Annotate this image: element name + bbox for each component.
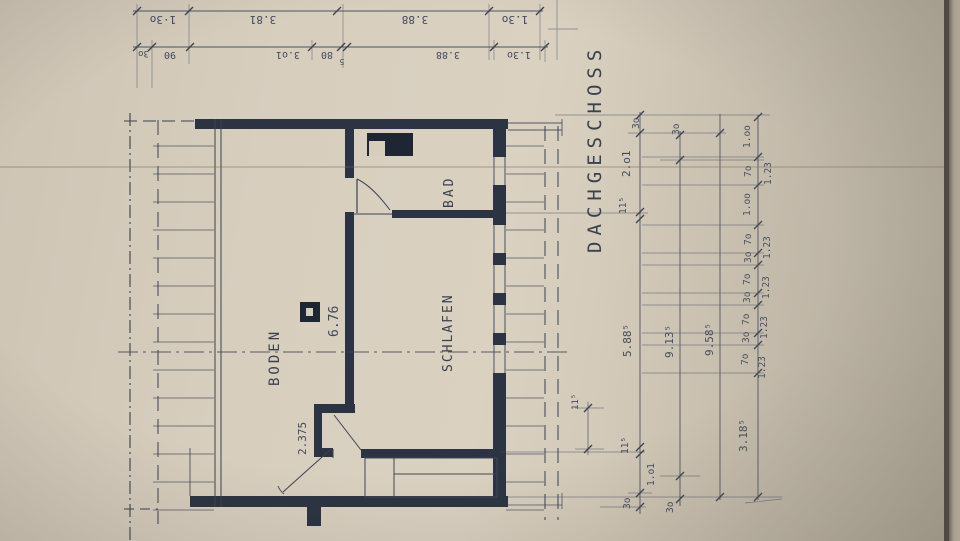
dim-c4-1: 7o [743,158,754,184]
dim-top-inner-5: 1.3o [497,49,541,60]
dim-c2-1: 9.13⁵ [663,306,676,376]
dimension-ticks [133,7,762,511]
dim-c1-2: 11⁵ [618,190,629,220]
dim-c4-4: 3o [743,249,754,265]
dim-window-height-5: 1.23 [757,351,768,385]
dim-c4-2: 1.oo [742,190,753,220]
dim-window-height-4: 1.23 [759,311,770,345]
dim-c4-9: 7o [740,346,751,372]
dim-c3-total: 9.58⁵ [703,303,716,375]
dim-c2-0: 3o [671,118,682,140]
dim-top-outer-2: 3.88 [388,13,442,26]
surface-beyond-paper [949,0,960,541]
paper-fold-crease [0,166,944,168]
dim-top-inner-tick-sup: 5 [336,57,348,66]
room-label-boden: BODEN [267,326,283,388]
chimneys [300,133,413,322]
dim-c1-5: 1.o1 [646,460,657,490]
floorplan-svg [0,0,960,541]
dim-top-outer-0: 1·3o [139,13,187,26]
dim-c1-6: 3o [622,492,633,514]
dim-top-inner-2: 3.o1 [266,49,310,60]
boden-door-swing [278,486,284,494]
dim-c4-6: 3o [742,289,753,305]
walls [190,119,508,526]
dim-boden-door: 2.375 [296,414,309,462]
dim-c1-4: 11⁵ [620,430,631,460]
dim-c1-1: 2.o1 [620,142,633,186]
dim-top-inner-0: 3o [134,48,153,58]
dim-c4-8: 3o [741,329,752,345]
bad-door-swing [357,179,390,210]
dim-boden-length: 6.76 [327,296,342,346]
dim-c1-3: 5.88⁵ [621,303,634,377]
dim-c1-0: 3o [631,112,642,134]
dim-window-height-1: 1.23 [763,157,774,191]
dim-top-outer-3: 1.3o [492,13,538,26]
dim-window-height-3: 1.23 [761,271,772,305]
room-label-schlafen: SCHLAFEN [441,281,456,385]
dim-window-height-2: 1.23 [762,231,773,265]
dim-top-inner-1: 90 [156,49,184,60]
dim-top-inner-4: 3.88 [424,49,472,60]
dim-c2-2: 3o [665,496,676,518]
dim-wall-thickness: 11⁵ [571,388,581,416]
floor-title: DACHGESCHOSS [584,6,606,291]
schlafen-door-swing [334,415,361,450]
bed-outline [365,458,497,497]
wall-stub [307,496,321,526]
dim-top-outer-1: 3.81 [236,13,290,26]
dim-c4-0: 1.oo [742,122,753,152]
dim-c4-10: 3.18⁵ [737,400,750,470]
blueprint-photo: DACHGESCHOSS BODEN SCHLAFEN BAD 6.76 2.3… [0,0,960,541]
extension-lines [137,0,782,507]
dimension-lines [133,11,758,514]
room-label-bad: BAD [442,167,457,217]
